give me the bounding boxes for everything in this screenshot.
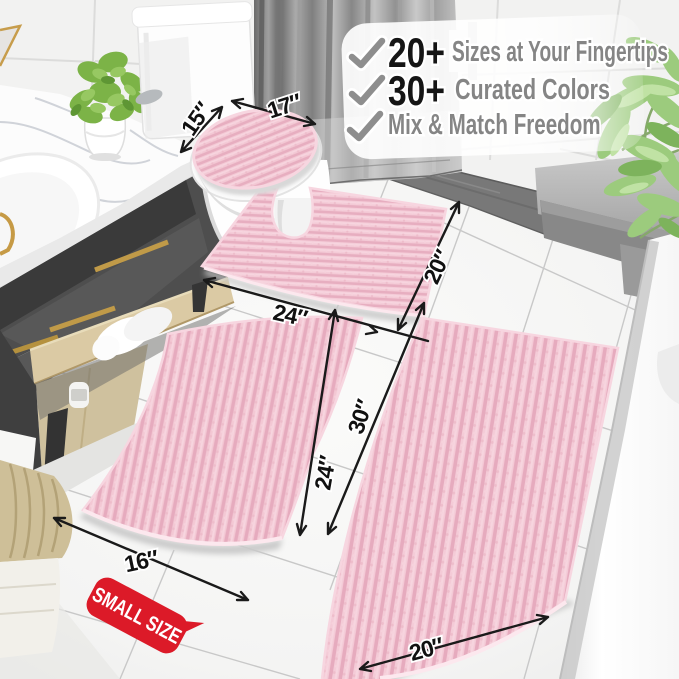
svg-text:Mix & Match Freedom: Mix & Match Freedom: [388, 109, 601, 141]
svg-text:Sizes at Your Fingertips: Sizes at Your Fingertips: [452, 36, 668, 68]
svg-text:Curated Colors: Curated Colors: [455, 74, 610, 106]
